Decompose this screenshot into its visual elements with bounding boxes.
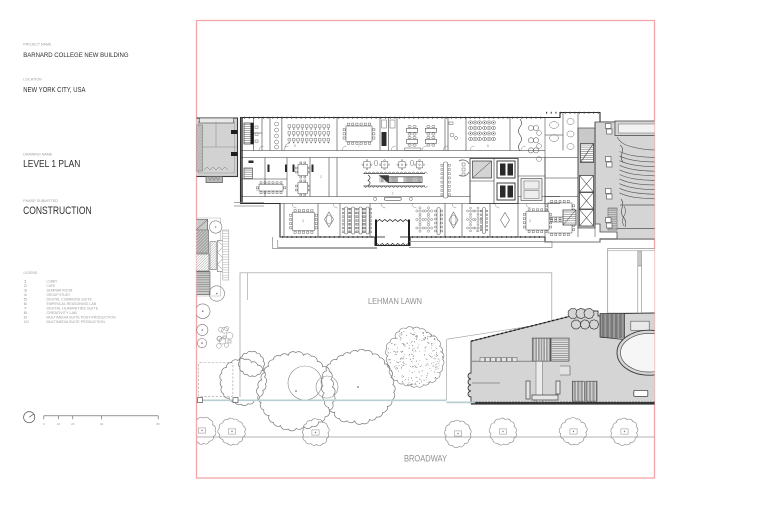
svg-text:3: 3 xyxy=(302,219,304,223)
svg-text:10: 10 xyxy=(24,320,30,324)
svg-text:6: 6 xyxy=(24,302,28,306)
svg-text:80: 80 xyxy=(157,422,161,426)
svg-text:SEMINAR ROOM: SEMINAR ROOM xyxy=(47,288,73,292)
svg-text:LOCATION: LOCATION xyxy=(23,77,42,81)
svg-text:4: 4 xyxy=(409,131,411,135)
svg-text:MULTIMEDIA SUITE PRODUCTION: MULTIMEDIA SUITE PRODUCTION xyxy=(47,320,106,324)
svg-text:BARNARD COLLEGE NEW BUILDING: BARNARD COLLEGE NEW BUILDING xyxy=(23,52,128,59)
svg-text:9: 9 xyxy=(24,315,28,319)
svg-text:DIGITAL COMMONS SUITE: DIGITAL COMMONS SUITE xyxy=(47,297,93,301)
svg-text:1: 1 xyxy=(24,280,28,284)
svg-text:3: 3 xyxy=(529,219,531,223)
svg-text:LEHMAN LAWN: LEHMAN LAWN xyxy=(368,297,422,306)
svg-text:PROJECT NAME: PROJECT NAME xyxy=(23,42,52,46)
svg-text:5: 5 xyxy=(24,297,28,301)
svg-text:GROUP STUDY: GROUP STUDY xyxy=(47,293,72,297)
svg-text:LEVEL 1 PLAN: LEVEL 1 PLAN xyxy=(23,159,80,170)
svg-text:8: 8 xyxy=(24,311,28,315)
svg-text:DIGITAL HUMANITIES SUITE: DIGITAL HUMANITIES SUITE xyxy=(47,306,100,310)
svg-text:1: 1 xyxy=(392,192,394,196)
svg-text:2: 2 xyxy=(476,229,478,233)
svg-text:4: 4 xyxy=(24,293,28,297)
svg-text:6: 6 xyxy=(487,144,489,148)
svg-text:7: 7 xyxy=(24,306,28,310)
svg-text:EMPIRICAL REASONING LAB: EMPIRICAL REASONING LAB xyxy=(47,302,98,306)
svg-text:40: 40 xyxy=(100,422,104,426)
svg-text:1: 1 xyxy=(256,188,258,192)
svg-text:CAFE: CAFE xyxy=(47,284,56,288)
svg-text:2: 2 xyxy=(320,175,322,179)
svg-text:MULTIMEDIA SUITE POST-PRODUCTI: MULTIMEDIA SUITE POST-PRODUCTION xyxy=(47,315,117,319)
svg-text:10: 10 xyxy=(57,422,61,426)
svg-text:LOBBY: LOBBY xyxy=(47,280,59,284)
svg-text:LEGEND: LEGEND xyxy=(24,271,38,275)
svg-text:5: 5 xyxy=(294,144,296,148)
svg-text:7: 7 xyxy=(358,144,360,148)
svg-text:DRAWING NAME: DRAWING NAME xyxy=(23,153,53,157)
svg-text:CONSTRUCTION: CONSTRUCTION xyxy=(23,205,92,217)
svg-text:BROADWAY: BROADWAY xyxy=(404,454,447,464)
svg-text:2: 2 xyxy=(24,284,28,288)
svg-text:3: 3 xyxy=(24,288,28,292)
svg-text:NEW YORK CITY, USA: NEW YORK CITY, USA xyxy=(23,87,86,94)
svg-text:CREATIVITY LAB: CREATIVITY LAB xyxy=(47,311,78,315)
svg-text:PHASE SUBMITTED: PHASE SUBMITTED xyxy=(23,199,58,203)
svg-text:20: 20 xyxy=(71,422,75,426)
